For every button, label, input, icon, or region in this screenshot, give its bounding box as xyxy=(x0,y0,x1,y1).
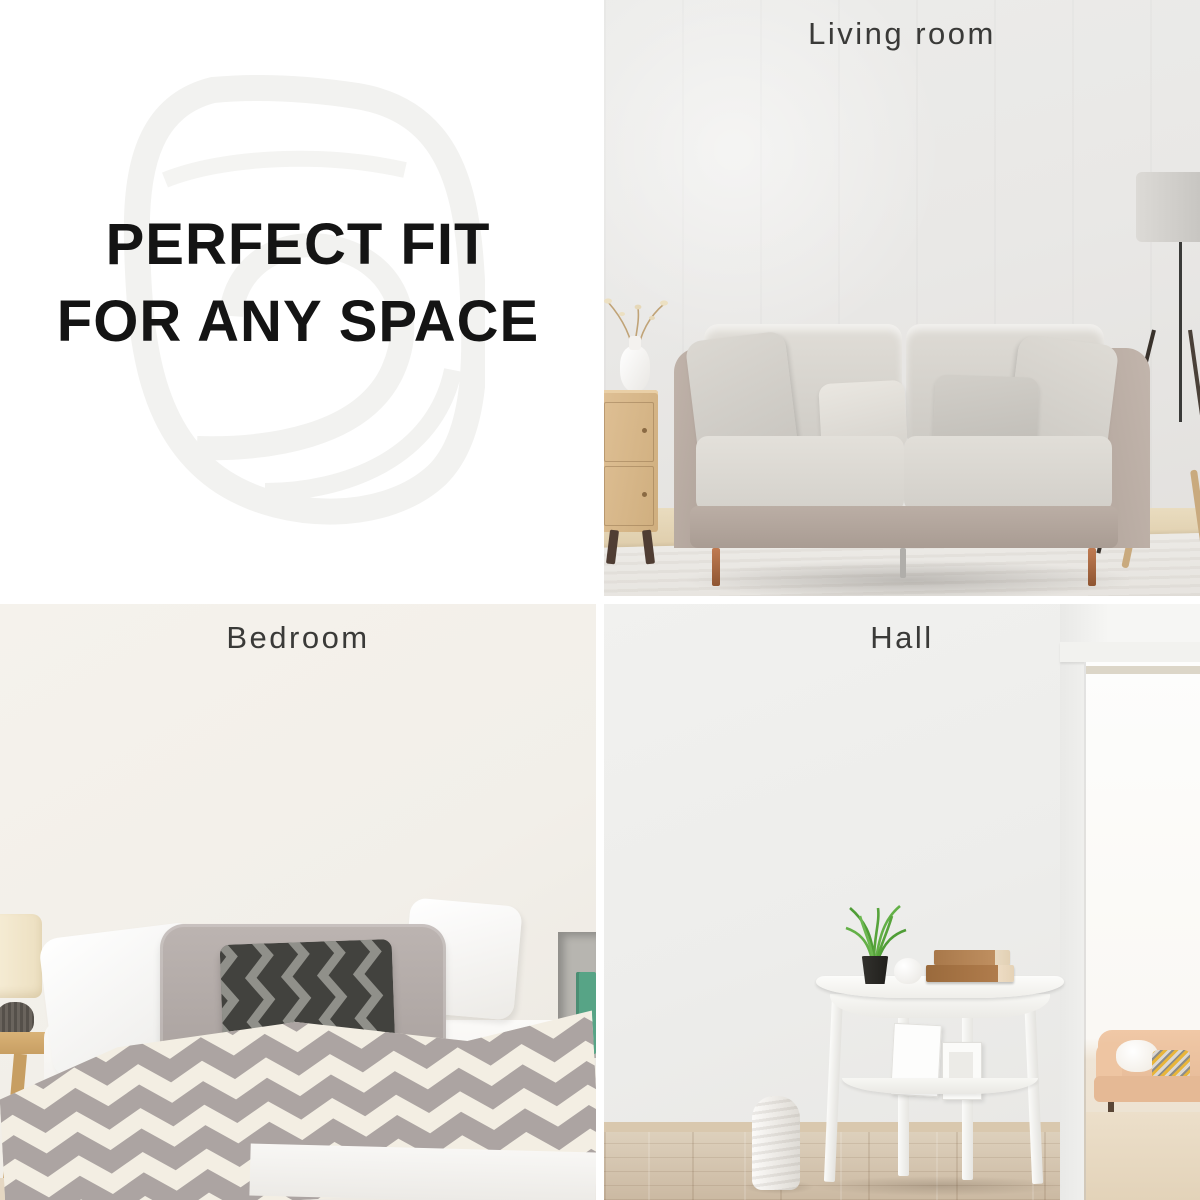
world-map: GREENLAND CANADA USA xyxy=(104,664,496,910)
oceania: AUSTRALIA xyxy=(928,818,1004,890)
pacific-ocean-label: PACIFIC xyxy=(135,756,162,762)
label-brazil: BRAZIL xyxy=(769,841,781,845)
north-america: CANADA USA xyxy=(723,87,832,221)
sailboat-icon xyxy=(266,755,276,765)
sofa-leg-center xyxy=(900,548,906,578)
photo-hall: Hall GREENLAND CANADA USA xyxy=(604,604,1200,1200)
world-map: GREENLAND CANADA USA xyxy=(700,68,1112,326)
airplane-icon: ✈ xyxy=(293,770,299,778)
svg-text:OCEAN: OCEAN xyxy=(676,769,698,775)
indian-ocean-label: INDIAN xyxy=(343,828,365,834)
sofa-leg xyxy=(1088,548,1096,586)
sofa-seat-right xyxy=(904,436,1112,512)
floor-vase-ridges xyxy=(752,1096,800,1190)
hall-title: Hall xyxy=(604,620,1200,656)
airplane-icon: ✈ xyxy=(992,891,998,899)
europe xyxy=(813,704,878,773)
label-usa: USA xyxy=(185,751,196,756)
atlantic-ocean-label: ATLANTIC xyxy=(866,145,901,152)
svg-text:OCEAN: OCEAN xyxy=(871,152,896,159)
airplane-icon: ✈ xyxy=(919,807,927,817)
atlantic-ocean-label: ATLANTIC xyxy=(792,746,823,752)
antarctica: ANTARCTICA xyxy=(747,885,933,903)
sofa-base xyxy=(690,506,1118,548)
label-usa: USA xyxy=(721,758,731,763)
label-russia: RUSSIA xyxy=(892,712,909,717)
indian-ocean-label: INDIAN xyxy=(951,240,975,246)
vase xyxy=(620,346,650,392)
airplane-icon: ✈ xyxy=(787,732,794,740)
photo-bedroom: Bedroom GREENLAND CANADA USA xyxy=(0,604,596,1200)
svg-text:OCEAN: OCEAN xyxy=(137,762,161,768)
label-russia: RUSSIA xyxy=(980,106,999,112)
hallway-sofa-seat xyxy=(1094,1076,1200,1102)
label-antarctica: ANTARCTICA xyxy=(794,895,828,899)
label-china: CHINA xyxy=(932,759,945,764)
bedroom-title: Bedroom xyxy=(0,620,596,656)
label-kazakhstan: KAZAKHSTAN xyxy=(893,744,909,747)
airplane-icon: ✈ xyxy=(861,128,869,138)
sofa-seat-left xyxy=(696,436,904,512)
label-australia: AUSTRALIA xyxy=(461,860,476,864)
book-top xyxy=(934,950,1010,965)
southern-ocean-label: SOUTHERN xyxy=(841,259,878,265)
svg-text:OCEAN: OCEAN xyxy=(266,745,290,751)
sailboat-icon xyxy=(994,256,1004,267)
airplane-icon: ✈ xyxy=(772,285,783,298)
airplane-icon: ✈ xyxy=(1094,308,1102,318)
console-table-shadow xyxy=(814,1176,1064,1196)
label-usa: USA xyxy=(785,159,796,165)
compass-rose-icon xyxy=(710,198,764,252)
floor-lamp-pole xyxy=(1179,242,1182,422)
airplane-icon: ✈ xyxy=(834,692,844,704)
pacific-ocean-label: PACIFIC xyxy=(733,163,762,170)
airplane-icon: ✈ xyxy=(307,677,319,692)
atlantic-ocean-label: ATLANTIC xyxy=(262,738,296,744)
airplane-icon: ✈ xyxy=(257,722,265,731)
roller-shade xyxy=(1086,666,1200,674)
airplane-icon: ✈ xyxy=(899,179,905,188)
baseboard xyxy=(604,1122,1082,1132)
label-china: CHINA xyxy=(1025,160,1041,166)
svg-text:OCEAN: OCEAN xyxy=(951,247,975,253)
promo-heading: PERFECT FIT FOR ANY SPACE xyxy=(57,207,539,360)
world-map-graphic: GREENLAND CANADA USA xyxy=(710,74,1108,323)
north-america: CANADA USA xyxy=(666,695,762,813)
drawer-knob xyxy=(642,492,647,497)
airplane-icon: ✈ xyxy=(479,893,486,902)
airplane-icon: ✈ xyxy=(709,868,719,880)
label-brazil: BRAZIL xyxy=(841,253,855,257)
hallway-floor xyxy=(1086,1112,1200,1200)
world-map-graphic: GREENLAND CANADA USA xyxy=(114,670,492,907)
doorway-opening xyxy=(1084,662,1200,1200)
living-room-title: Living room xyxy=(604,16,1200,52)
oceania: AUSTRALIA xyxy=(410,815,492,893)
photo-living-room: Living room GREENLAND CANADA USA xyxy=(604,0,1200,596)
panel-promo: PERFECT FIT FOR ANY SPACE xyxy=(0,0,596,596)
sailboat-icon xyxy=(870,163,880,174)
label-greenland: GREENLAND xyxy=(867,101,888,105)
airplane-icon: ✈ xyxy=(821,777,826,784)
antarctica: ANTARCTICA xyxy=(815,303,1027,324)
sailboat-icon xyxy=(383,843,393,853)
svg-text:OCEAN: OCEAN xyxy=(343,834,366,840)
floor-lamp-shade xyxy=(1136,172,1200,242)
airplane-icon: ✈ xyxy=(173,871,183,883)
drawer-knob xyxy=(642,428,647,433)
promo-heading-line2: FOR ANY SPACE xyxy=(57,284,539,361)
label-russia: RUSSIA xyxy=(371,701,389,706)
label-greenland: GREENLAND xyxy=(793,708,811,712)
pacific-ocean-label: PACIFIC xyxy=(675,763,700,769)
sailboat-icon xyxy=(795,762,804,771)
label-canada: CANADA xyxy=(781,124,800,129)
collage-grid: PERFECT FIT FOR ANY SPACE Living room GR… xyxy=(0,0,1200,1200)
svg-text:OCEAN: OCEAN xyxy=(866,836,887,842)
europe xyxy=(890,97,964,175)
svg-text:OCEAN: OCEAN xyxy=(796,753,818,759)
airplane-icon: ✈ xyxy=(400,804,408,814)
book-bottom xyxy=(926,965,1014,982)
label-brazil: BRAZIL xyxy=(238,840,252,844)
bed-sheet xyxy=(249,1143,596,1200)
north-america: CANADA USA xyxy=(126,682,230,809)
table-lamp-shade xyxy=(0,914,42,998)
compass-rose-icon xyxy=(655,793,702,840)
small-white-vase xyxy=(894,958,922,984)
label-australia: AUSTRALIA xyxy=(1075,274,1091,278)
svg-text:OCEAN: OCEAN xyxy=(776,852,797,858)
southern-ocean-label: SOUTHERN xyxy=(238,846,273,852)
svg-text:OCEAN: OCEAN xyxy=(894,100,916,106)
svg-text:OCEAN: OCEAN xyxy=(288,694,309,700)
label-kazakhstan: KAZAKHSTAN xyxy=(372,735,389,738)
compass-rose-icon xyxy=(114,788,165,839)
europe xyxy=(284,692,355,766)
label-antarctica: ANTARCTICA xyxy=(264,899,301,903)
svg-text:OCEAN: OCEAN xyxy=(245,852,268,858)
label-greenland: GREENLAND xyxy=(263,696,284,700)
airplane-icon: ✈ xyxy=(1011,214,1020,225)
world-map: GREENLAND CANADA USA xyxy=(646,668,1008,916)
sofa-shadow xyxy=(684,560,1134,596)
label-canada: CANADA xyxy=(717,728,734,732)
svg-text:OCEAN: OCEAN xyxy=(816,706,836,711)
oceania: AUSTRALIA xyxy=(1021,227,1108,309)
label-china: CHINA xyxy=(413,752,428,757)
world-map-graphic: GREENLAND CANADA USA xyxy=(655,684,1004,903)
label-antarctica: ANTARCTICA xyxy=(868,315,907,319)
sailboat-icon xyxy=(904,844,913,853)
sofa-leg xyxy=(712,548,720,586)
svg-text:OCEAN: OCEAN xyxy=(735,170,760,177)
antarctica: ANTARCTICA xyxy=(214,888,416,908)
label-kazakhstan: KAZAKHSTAN xyxy=(982,141,1000,145)
svg-text:OCEAN: OCEAN xyxy=(848,266,872,272)
label-australia: AUSTRALIA xyxy=(976,861,990,864)
vase-neck xyxy=(629,336,641,350)
airplane-icon: ✈ xyxy=(914,81,926,97)
label-canada: CANADA xyxy=(181,717,199,722)
promo-heading-line1: PERFECT FIT xyxy=(57,207,539,284)
